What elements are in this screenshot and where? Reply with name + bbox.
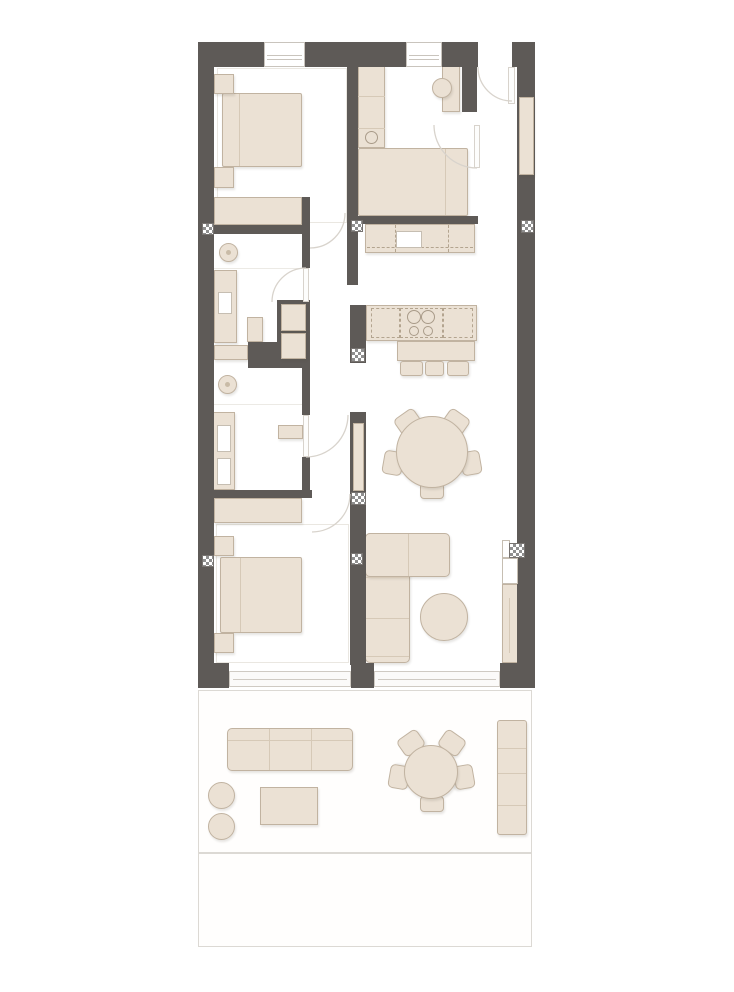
wall-stub-bedroom1 xyxy=(302,197,310,268)
slider-door-1 xyxy=(229,671,351,687)
closet-shelf-top xyxy=(281,304,306,331)
bathroom1-door-leaf xyxy=(303,268,309,302)
bedroom1-nightstand-top xyxy=(214,74,234,94)
bathroom2-door-arc xyxy=(306,415,348,457)
bedroom3-bed xyxy=(220,557,302,633)
corridor-cabinet xyxy=(353,423,364,491)
bedroom2-bed xyxy=(358,148,468,216)
bathroom1-door-arc xyxy=(272,268,306,302)
bedroom1-bed xyxy=(222,93,302,167)
bathroom2-floor-line xyxy=(213,404,302,405)
sun-lounger-line-1 xyxy=(498,748,526,749)
bathroom2-wc xyxy=(278,425,303,439)
sun-lounger xyxy=(497,720,527,835)
bathroom2-sink-bottom xyxy=(217,458,231,485)
terrace-sofa xyxy=(227,728,353,771)
bathroom1-sink xyxy=(218,292,232,314)
wall-pier-bottom-center xyxy=(351,663,374,688)
terrace-pouf-2 xyxy=(208,813,235,840)
sofa-seam-h1 xyxy=(366,577,409,578)
bedroom2-bed-seam xyxy=(445,149,446,215)
kitchen-island-dash-right xyxy=(443,308,473,338)
cooktop-burner-3 xyxy=(409,326,419,336)
bathroom1-floor-line xyxy=(214,268,302,269)
tv-unit xyxy=(502,584,518,663)
sofa-seam-v xyxy=(408,534,409,576)
hatch-corridor xyxy=(351,492,366,505)
bar-stool-3 xyxy=(447,361,469,376)
wall-pier-bottom-right xyxy=(500,663,535,688)
bedroom2-wardrobe-knob xyxy=(365,131,378,144)
kitchen-island-dash-left xyxy=(371,308,400,338)
garden-strip xyxy=(198,853,532,947)
bedroom2-door-leaf xyxy=(474,125,480,168)
bedroom1-dresser xyxy=(214,197,302,225)
coffee-table xyxy=(420,593,468,641)
wall-entry-stub xyxy=(462,42,477,112)
terrace-sofa-seam-v2 xyxy=(311,729,312,770)
dining-table xyxy=(396,416,468,488)
bathroom1-shower-bench xyxy=(214,345,248,360)
kitchen-sink xyxy=(396,231,422,248)
terrace-sofa-seam-h xyxy=(228,740,352,741)
cooktop-burner-4 xyxy=(423,326,433,336)
bathroom2-toilet-dot xyxy=(225,382,230,387)
hatch-kitchen-right xyxy=(521,220,534,233)
kitchen-island-bar xyxy=(397,341,475,361)
hatch-island-stub xyxy=(351,348,365,362)
hatch-kitchen-left xyxy=(351,220,363,232)
sun-lounger-line-2 xyxy=(498,773,526,774)
terrace-pouf-1 xyxy=(208,782,235,809)
cooktop-burner-1 xyxy=(407,310,421,324)
entry-wall-panel xyxy=(519,97,534,175)
entry-door-arc xyxy=(478,67,512,101)
sun-lounger-line-3 xyxy=(498,805,526,806)
sofa-seam-h2 xyxy=(366,618,409,619)
hatch-tv-wall xyxy=(509,543,525,558)
tv-unit-line xyxy=(509,598,510,653)
bedroom2-wardrobe-shelf-line-1 xyxy=(358,96,385,97)
wall-bedroom1-bedroom2-divider xyxy=(347,65,358,285)
bedroom3-nightstand-top xyxy=(214,536,234,556)
bathroom1-wc xyxy=(247,317,263,342)
terrace-coffee-table xyxy=(260,787,318,825)
floor-plan xyxy=(0,0,734,992)
bar-stool-1 xyxy=(400,361,423,376)
wall-bedroom2-bottom xyxy=(350,216,478,224)
bedroom1-bed-seam xyxy=(239,94,240,166)
bedroom2-wardrobe-shelf-line-2 xyxy=(358,128,385,129)
terrace-dining-table xyxy=(404,745,458,799)
hatch-divider-bedroom3 xyxy=(351,553,363,565)
wall-bathroom2-right-upper xyxy=(302,368,310,415)
wall-bedroom1-bottom xyxy=(214,225,302,234)
hatch-left-upper xyxy=(202,223,214,235)
window-2 xyxy=(406,42,442,67)
wall-bath-divider-chunk xyxy=(248,342,277,368)
terrace-sofa-seam-v1 xyxy=(269,729,270,770)
bedroom1-nightstand-bottom xyxy=(214,167,234,188)
slider-door-2 xyxy=(374,671,500,687)
bar-stool-2 xyxy=(425,361,444,376)
wall-top-b xyxy=(305,42,406,67)
bedroom2-desk-chair xyxy=(432,78,452,98)
wall-pier-bottom-left xyxy=(198,663,229,688)
wall-bathroom2-bottom xyxy=(214,490,312,498)
sofa-seam-h3 xyxy=(366,656,409,657)
terrace-floor xyxy=(198,690,532,853)
bedroom3-dresser xyxy=(214,498,302,523)
entry-door-leaf xyxy=(508,67,515,104)
bathroom1-toilet-dot xyxy=(226,250,231,255)
cooktop-burner-2 xyxy=(421,310,435,324)
wall-bathroom2-right-lower xyxy=(302,457,310,490)
bedroom3-bed-seam xyxy=(240,558,241,632)
window-1 xyxy=(264,42,305,67)
bathroom2-door-leaf xyxy=(303,415,309,457)
bathroom2-sink-top xyxy=(217,425,231,452)
tv-wall-shelf xyxy=(502,558,518,584)
closet-shelf-bottom xyxy=(281,333,306,359)
hatch-left-lower xyxy=(202,555,214,567)
bedroom3-nightstand-bottom xyxy=(214,633,234,653)
wall-left xyxy=(198,42,214,687)
